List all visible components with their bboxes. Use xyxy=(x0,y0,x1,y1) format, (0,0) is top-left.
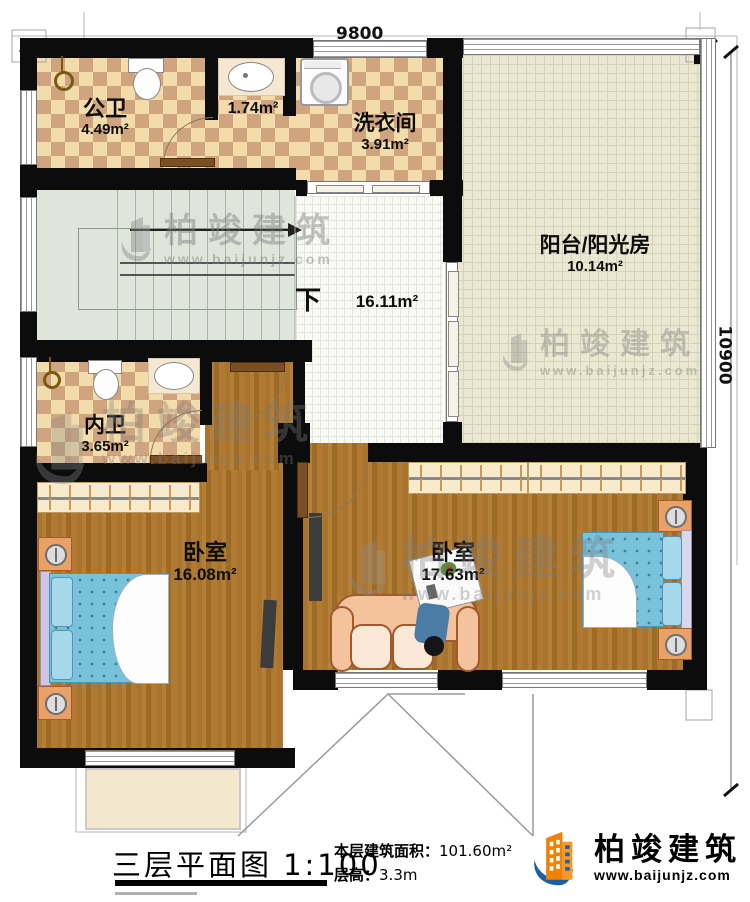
door-public-bath xyxy=(160,158,215,167)
door-bedroom-left xyxy=(230,362,285,372)
wall-bath-bottom xyxy=(20,168,296,190)
toilet-icon xyxy=(93,369,119,400)
floor-door-gap xyxy=(303,443,373,463)
room-label-public-bath: 公卫4.49m² xyxy=(55,96,155,139)
wardrobe-icon xyxy=(408,462,686,494)
wall-corridor-block xyxy=(278,423,310,463)
company-logo: 柏竣建筑 www.baijunjz.com xyxy=(528,826,742,890)
stair-arrow-icon xyxy=(288,223,302,237)
dimension-top: 9800 xyxy=(336,24,383,44)
sink-icon xyxy=(154,362,194,390)
room-label-bedroom-right: 卧室17.63m² xyxy=(398,540,508,585)
title-underline-2 xyxy=(115,892,197,895)
nightstand-icon xyxy=(38,537,72,571)
room-label-hall: 16.11m² xyxy=(342,292,432,312)
sink-drain xyxy=(243,73,248,78)
floor-height-row: 层高：3.3m xyxy=(334,864,417,885)
window-bottom-2 xyxy=(502,672,647,688)
wall-bottom-3 xyxy=(647,670,707,690)
person-head xyxy=(424,636,444,656)
sofa-cushion xyxy=(350,624,392,670)
floor-area-row: 本层建筑面积：101.60m² xyxy=(334,840,512,861)
company-url: www.baijunjz.com xyxy=(594,867,742,883)
stair-handrail xyxy=(120,262,295,276)
window-bottom-1 xyxy=(335,672,438,688)
wall-private-bath-bottom xyxy=(20,463,207,482)
tv-icon xyxy=(309,513,322,601)
sofa-armrest xyxy=(456,606,480,672)
wall-bottom-1 xyxy=(293,670,338,690)
title-underline xyxy=(115,880,327,886)
nightstand-icon xyxy=(658,500,692,532)
window-left-1 xyxy=(20,90,37,165)
bed-pillow xyxy=(51,577,73,627)
wall-bedroom-right-top xyxy=(368,443,707,462)
floor-lower-balcony xyxy=(85,768,241,830)
sliding-window-laundry xyxy=(307,181,430,194)
window-left-2 xyxy=(20,197,37,312)
bed-pillow xyxy=(662,582,682,626)
stairs-down-label: 下 xyxy=(290,286,326,316)
wall-hall-corridor xyxy=(293,362,305,423)
room-label-bedroom-left: 卧室16.08m² xyxy=(150,540,260,585)
wall-bottom-2 xyxy=(438,670,502,690)
company-name: 柏竣建筑 xyxy=(594,833,742,867)
sink-icon xyxy=(228,62,274,92)
dimension-right: 10900 xyxy=(715,325,735,384)
bed-blanket xyxy=(112,574,169,684)
window-balcony-door xyxy=(85,750,235,766)
room-label-vestibule: 1.74m² xyxy=(215,100,291,118)
bed-pillow xyxy=(51,630,73,680)
floor-hall xyxy=(296,196,443,443)
nightstand-icon xyxy=(38,686,72,720)
towel-ring-icon xyxy=(54,71,74,91)
room-label-laundry: 洗衣间3.91m² xyxy=(330,112,440,153)
bed-pillow xyxy=(662,536,682,580)
wall-laundry-bottom-1 xyxy=(296,180,307,196)
room-label-balcony: 阳台/阳光房10.14m² xyxy=(510,234,680,275)
balcony-rail-top xyxy=(463,38,700,55)
stair-direction-line xyxy=(130,229,290,231)
sliding-door-balcony xyxy=(446,262,458,422)
wardrobe-icon xyxy=(37,482,200,513)
window-left-3 xyxy=(20,357,37,447)
wall-top-1 xyxy=(37,38,313,58)
nightstand-icon xyxy=(658,628,692,660)
room-label-private-bath: 内卫3.65m² xyxy=(62,414,148,455)
towel-ring-icon xyxy=(43,371,61,389)
door-bedroom-right xyxy=(297,462,308,518)
company-logo-icon xyxy=(528,826,586,890)
washing-machine-icon xyxy=(300,58,349,106)
wall-laundry-balcony xyxy=(443,38,462,262)
floor-plan: 公卫4.49m² 1.74m² 洗衣间3.91m² 阳台/阳光房10.14m² … xyxy=(0,0,750,902)
balcony-rail-right xyxy=(700,38,716,448)
door-private-bath xyxy=(150,455,202,464)
bed-headboard xyxy=(681,530,692,631)
